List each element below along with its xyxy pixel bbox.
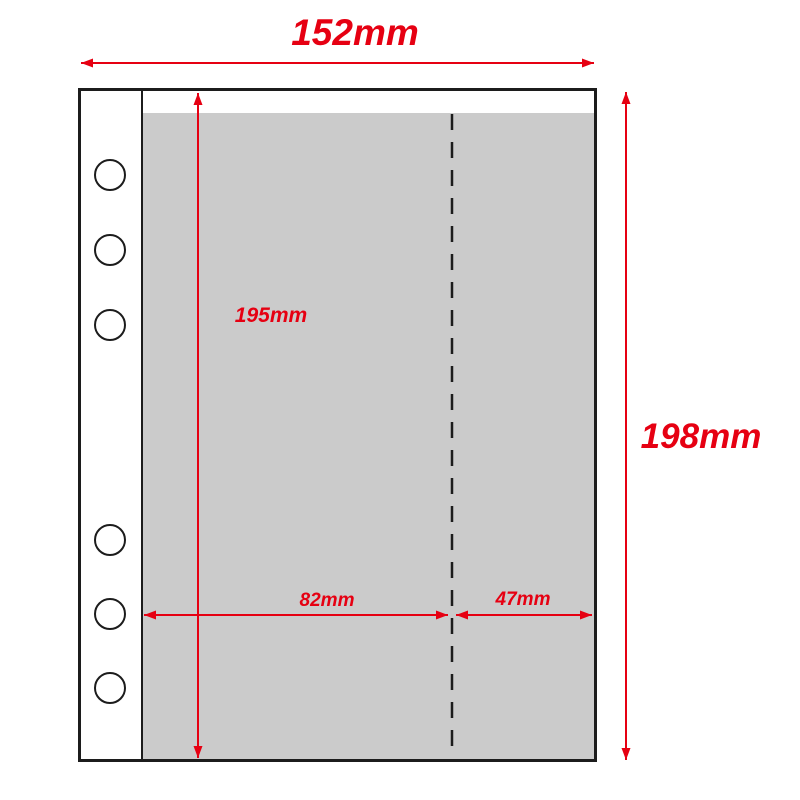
left-section-dimension-label: 82mm [300, 590, 355, 612]
pocket-height-dimension-label: 195mm [235, 304, 307, 328]
binder-sheet-outline [78, 88, 597, 762]
binder-hole [94, 309, 126, 341]
binder-hole [94, 524, 126, 556]
binder-hole [94, 672, 126, 704]
binder-hole [94, 234, 126, 266]
width-dimension-label: 152mm [291, 12, 419, 54]
binder-hole [94, 598, 126, 630]
dimension-diagram-canvas: 152mm 198mm 195mm 82mm 47mm [0, 0, 800, 800]
height-dimension-label: 198mm [641, 417, 762, 457]
pocket-gray-area [143, 113, 594, 759]
binder-hole [94, 159, 126, 191]
right-section-dimension-label: 47mm [496, 589, 551, 611]
